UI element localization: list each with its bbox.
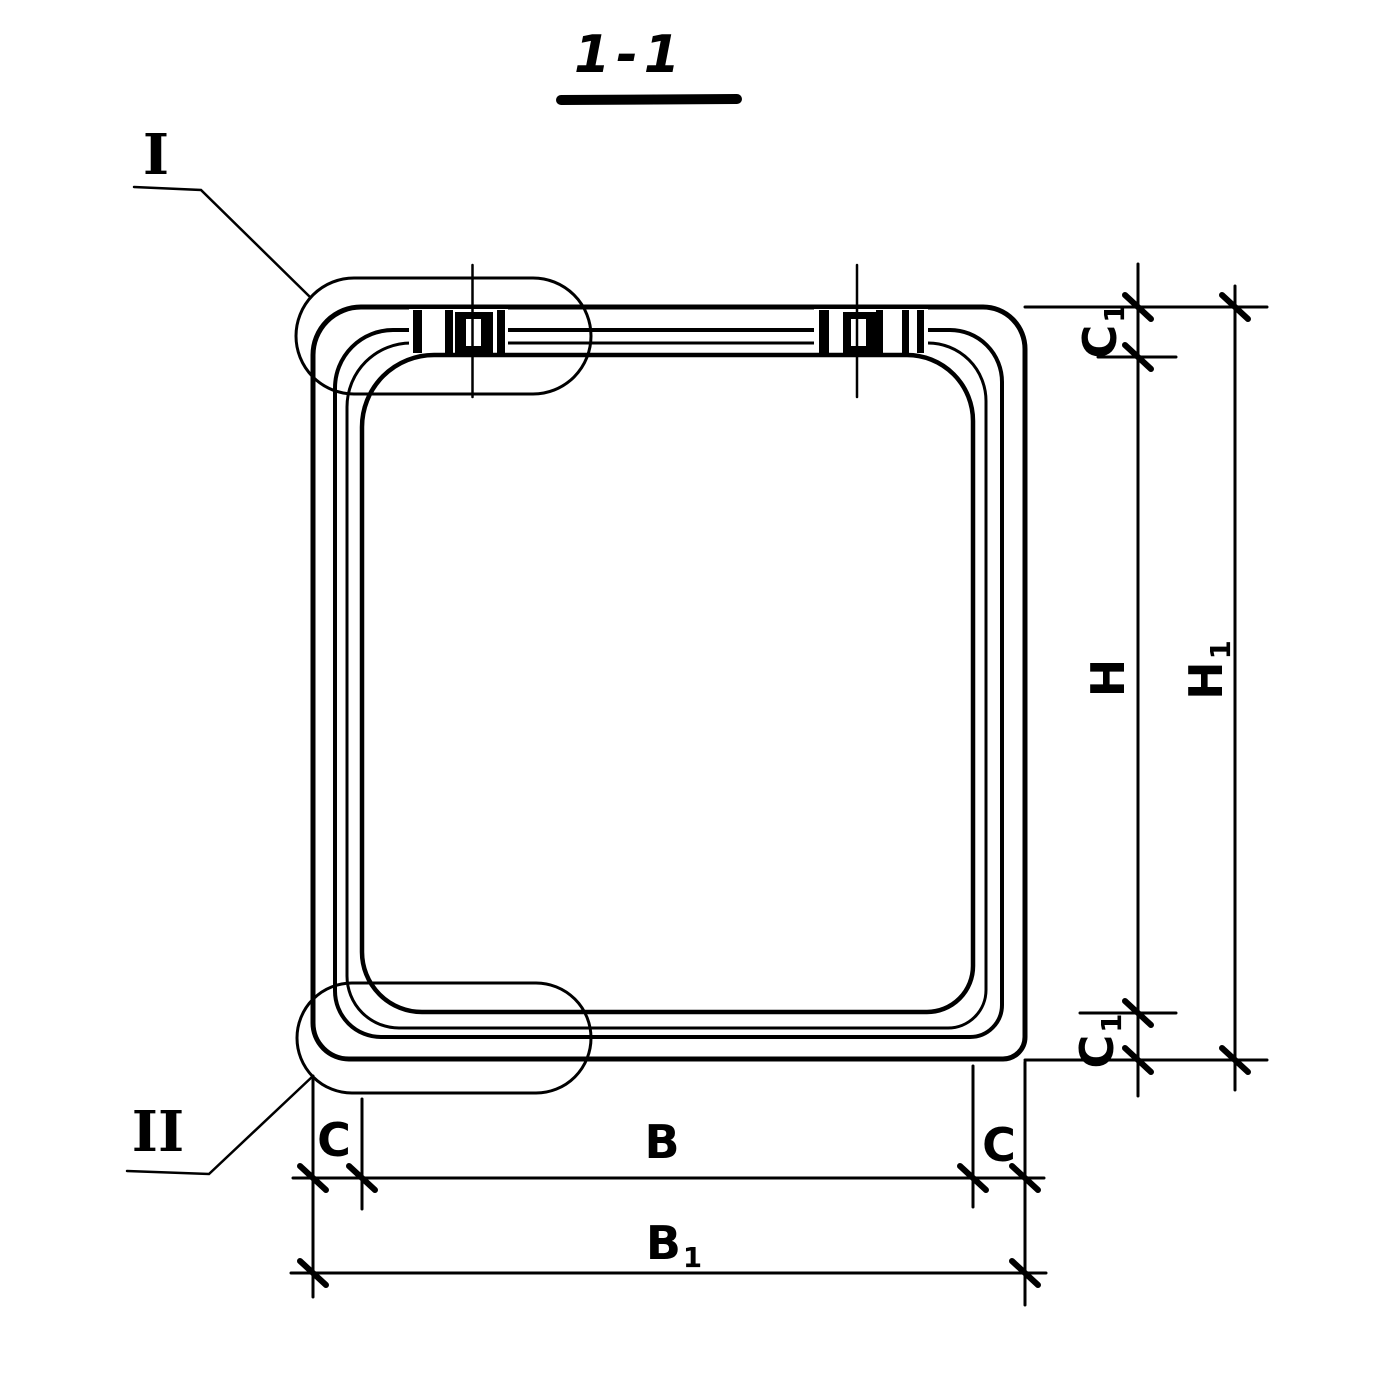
dimension-lines [291,264,1267,1305]
dim-label-h: H [1085,659,1131,698]
joint-right [814,309,928,353]
leader-lines [127,187,313,1174]
title-underline [561,99,737,100]
detail-label-II: II [132,1104,184,1160]
dim-label-c-right: C [982,1122,1016,1168]
section-drawing-sheet: 1-1 I II C1 H H1 C1 C B C B1 [0,0,1374,1379]
dim-b1-sub: 1 [683,1241,702,1274]
dim-label-b1: B1 [646,1220,702,1266]
dim-h1-main: H [1179,661,1233,700]
section-title: 1-1 [574,29,686,81]
dim-h-main: H [1081,659,1135,698]
dim-label-b: B [644,1119,679,1165]
dim-h1-sub: 1 [1204,640,1237,659]
dim-label-c-left: C [317,1117,351,1163]
dim-label-h1: H1 [1183,640,1229,700]
dim-b1-main: B [646,1216,681,1270]
dimension-ticks [300,295,1248,1285]
dim-c1-top-sub: 1 [1098,304,1131,323]
detail-label-I: I [143,127,169,183]
dim-c1-top-main: C [1073,325,1127,359]
dim-c1-bottom-sub: 1 [1095,1014,1128,1033]
wall-rings [335,330,1002,1037]
dim-c1-bottom-main: C [1070,1035,1124,1069]
section-drawing-svg [0,0,1374,1379]
frame-outline [313,307,1025,1059]
joint-left [409,309,508,353]
dim-label-c1-bottom: C1 [1074,1014,1120,1069]
dim-label-c1-top: C1 [1077,304,1123,359]
